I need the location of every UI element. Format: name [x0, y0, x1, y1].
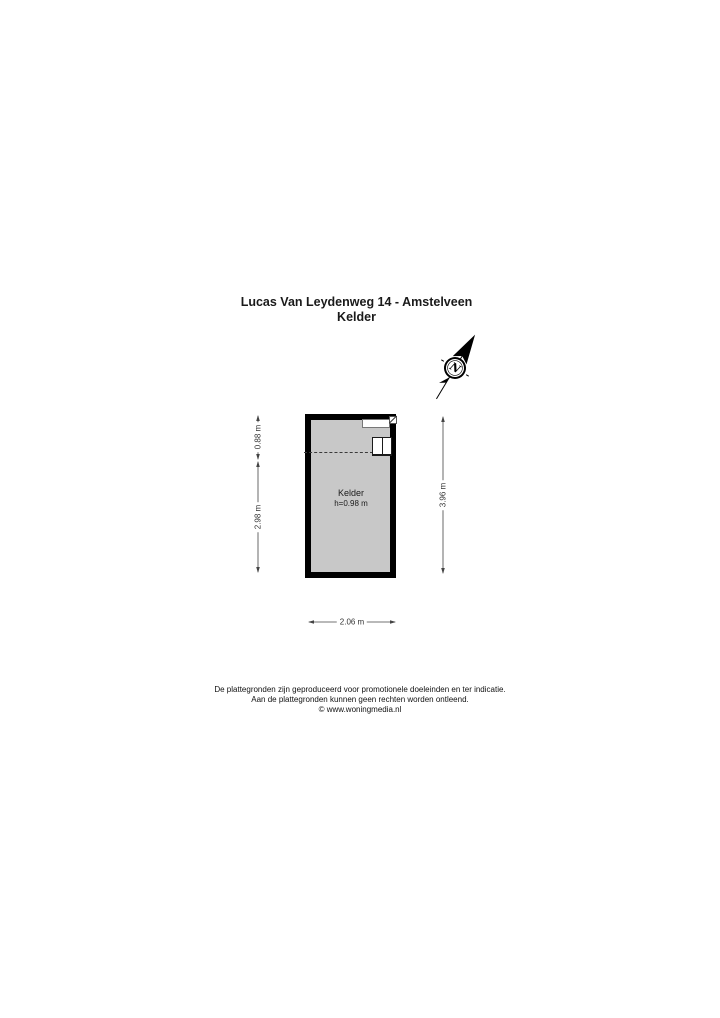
disclaimer-line-2: Aan de plattegronden kunnen geen rechten…: [0, 695, 720, 705]
dimension-label-left-bottom: 2.98 m: [253, 502, 264, 532]
floorplan-page: Lucas Van Leydenweg 14 - Amstelveen Keld…: [0, 0, 720, 1018]
disclaimer-line-1: De plattegronden zijn geproduceerd voor …: [0, 685, 720, 695]
dimension-lines: [0, 0, 720, 1018]
disclaimer-copyright: © www.woningmedia.nl: [0, 705, 720, 715]
footer-disclaimer: De plattegronden zijn geproduceerd voor …: [0, 685, 720, 715]
dimension-label-bottom: 2.06 m: [337, 617, 367, 628]
dimension-label-right: 3.96 m: [438, 480, 449, 510]
dimension-label-left-top: 0.88 m: [253, 422, 264, 452]
